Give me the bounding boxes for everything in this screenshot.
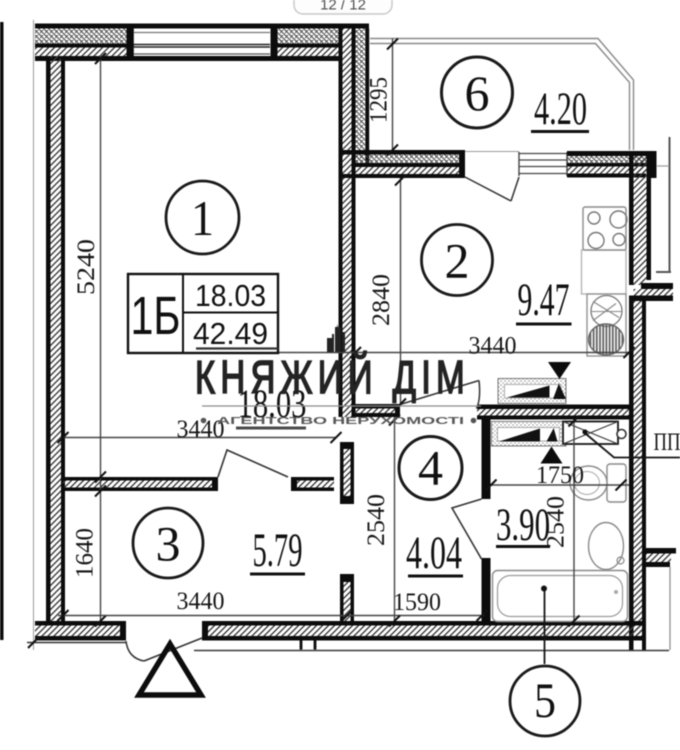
svg-text:1750: 1750: [536, 462, 584, 489]
svg-text:2540: 2540: [363, 494, 390, 546]
svg-text:3: 3: [156, 516, 181, 572]
svg-text:12 / 12: 12 / 12: [320, 0, 366, 14]
svg-text:1Б: 1Б: [131, 286, 181, 346]
svg-text:1640: 1640: [72, 528, 99, 578]
svg-text:1590: 1590: [393, 589, 441, 616]
svg-text:АГЕНТСТВО НЕРУХОМОСТІ: АГЕНТСТВО НЕРУХОМОСТІ: [217, 415, 464, 427]
svg-text:2840: 2840: [368, 274, 395, 326]
svg-text:4: 4: [418, 440, 443, 496]
svg-text:6: 6: [465, 65, 490, 121]
svg-text:4.04: 4.04: [406, 527, 462, 579]
svg-text:42.49: 42.49: [193, 316, 268, 351]
svg-text:4.20: 4.20: [534, 83, 587, 135]
svg-text:КНЯЖИЙ ДІМ: КНЯЖИЙ ДІМ: [195, 351, 470, 403]
svg-text:2: 2: [445, 233, 470, 289]
svg-text:ПП: ПП: [654, 429, 680, 456]
svg-text:3440: 3440: [177, 588, 225, 615]
svg-text:18.03: 18.03: [195, 278, 266, 313]
svg-text:5: 5: [534, 672, 556, 728]
svg-text:1: 1: [191, 190, 214, 246]
svg-text:5.79: 5.79: [253, 524, 303, 577]
svg-text:3440: 3440: [469, 333, 517, 360]
svg-text:9.47: 9.47: [518, 274, 570, 326]
svg-text:3.90: 3.90: [496, 499, 550, 551]
svg-text:5240: 5240: [73, 239, 100, 295]
svg-text:1295: 1295: [366, 77, 393, 123]
